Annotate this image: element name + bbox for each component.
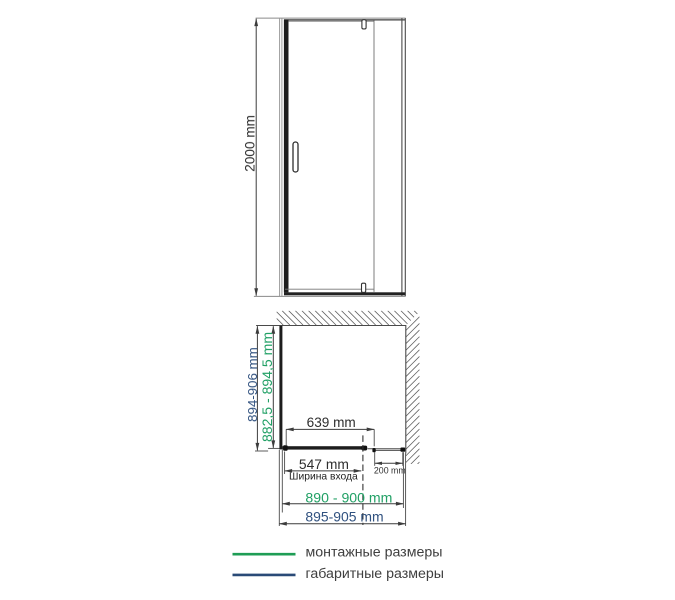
svg-text:монтажные размеры: монтажные размеры	[306, 544, 443, 560]
svg-text:894-906 mm: 894-906 mm	[245, 347, 260, 422]
svg-text:895-905 mm: 895-905 mm	[305, 509, 383, 525]
svg-text:639 mm: 639 mm	[307, 415, 356, 430]
svg-text:Ширина входа: Ширина входа	[289, 472, 358, 483]
svg-text:2000 mm: 2000 mm	[243, 115, 258, 172]
svg-text:547 mm: 547 mm	[299, 456, 349, 472]
svg-text:200 mm: 200 mm	[374, 466, 406, 476]
svg-text:882,5 - 894,5 mm: 882,5 - 894,5 mm	[259, 332, 275, 442]
svg-text:890 - 900 mm: 890 - 900 mm	[305, 489, 392, 505]
svg-text:габаритные размеры: габаритные размеры	[306, 566, 444, 582]
